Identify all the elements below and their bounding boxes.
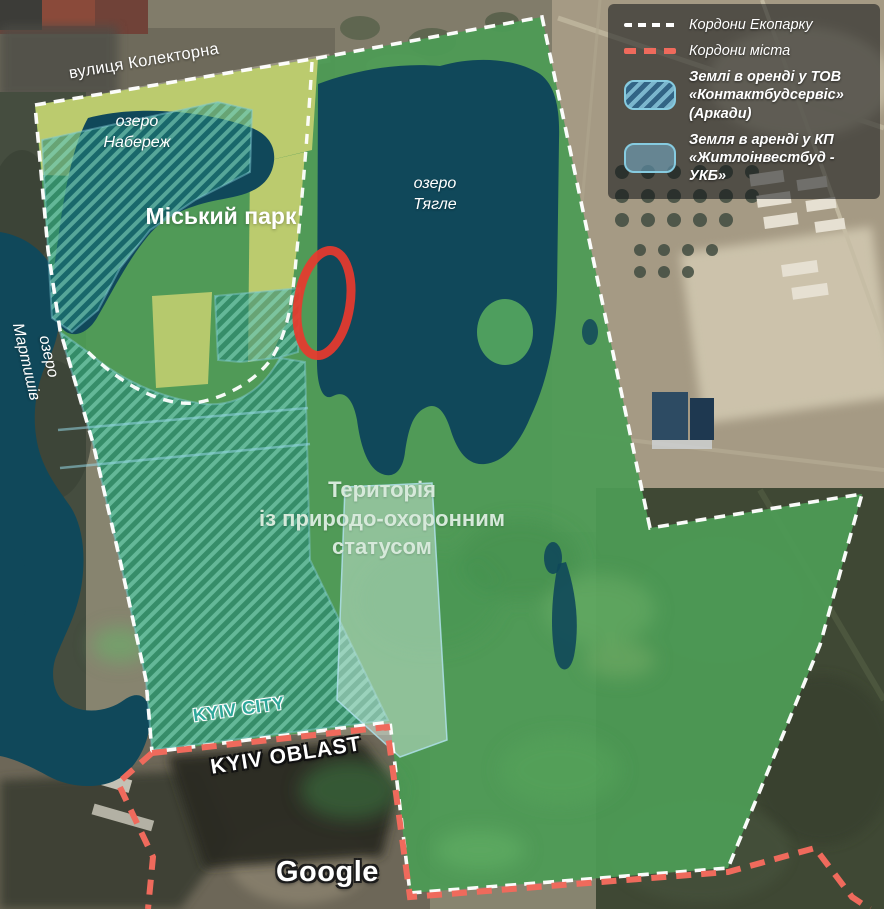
legend: Кордони Екопарку Кордони міста Землі в о… — [608, 4, 880, 199]
legend-ecopark-border-label: Кордони Екопарку — [689, 16, 872, 34]
legend-lease-zhytlo-line2: «Житлоінвестбуд - УКБ» — [689, 150, 835, 184]
legend-lease-zhytlo-label: Земля в аренді у КП «Житлоінвестбуд - УК… — [689, 131, 872, 185]
legend-lease-kontakt-line1: Землі в оренді у ТОВ — [689, 69, 841, 85]
legend-city-border-label: Кордони міста — [689, 42, 872, 60]
park-yellow-tail — [152, 292, 212, 388]
leased-solid-zone — [337, 483, 447, 757]
legend-lease-zhytlo-line1: Земля в аренді у КП — [689, 132, 834, 148]
ecopark-border-swatch — [624, 23, 676, 27]
map-screenshot: вулиця Колекторна озеро Набереж Міський … — [0, 0, 884, 909]
city-border-swatch — [624, 48, 676, 54]
legend-lease-kontakt-label: Землі в оренді у ТОВ «Контактбудсервіс» … — [689, 68, 872, 122]
lease-kontakt-swatch — [624, 80, 676, 110]
lease-zhytlo-swatch — [624, 143, 676, 173]
legend-lease-kontakt-line2: «Контактбудсервіс» (Аркади) — [689, 87, 844, 121]
lake-island-green — [477, 299, 533, 365]
